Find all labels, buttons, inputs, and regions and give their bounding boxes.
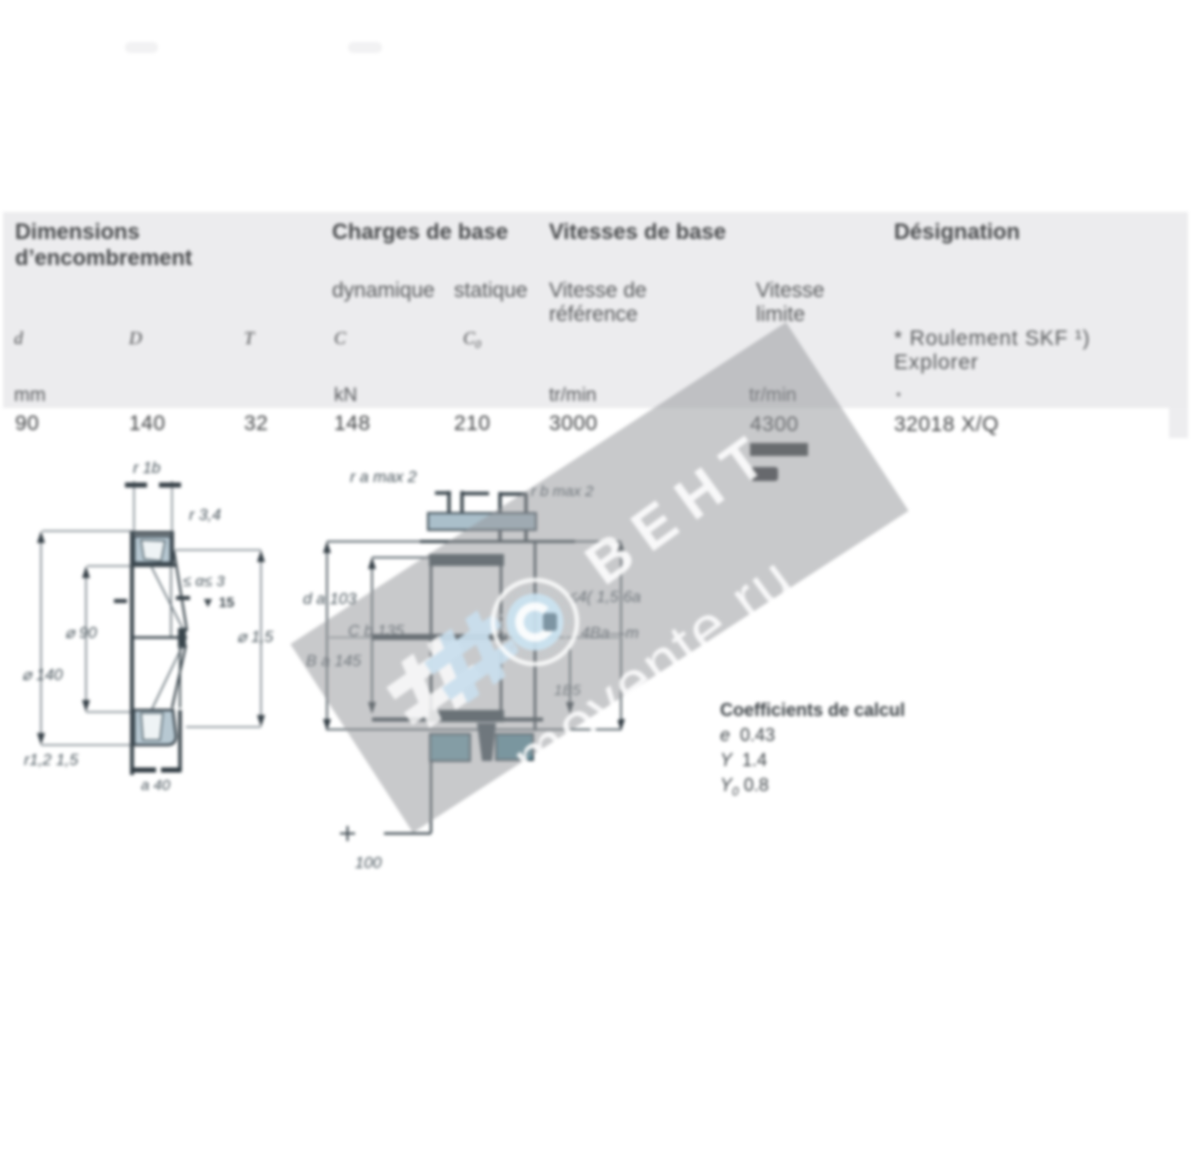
svg-text:r 1b: r 1b xyxy=(133,460,161,477)
svg-text:⌀ 1,5: ⌀ 1,5 xyxy=(237,629,273,646)
svg-text:⌀ 140: ⌀ 140 xyxy=(22,667,63,684)
svg-text:r a max 2: r a max 2 xyxy=(350,469,417,486)
svg-text:a 40: a 40 xyxy=(141,777,171,794)
svg-text:▼ 15: ▼ 15 xyxy=(201,594,235,610)
svg-text:r 3,4: r 3,4 xyxy=(189,507,221,524)
svg-text:r1,2 1,5: r1,2 1,5 xyxy=(24,752,78,769)
svg-text:≤ α≤ 3: ≤ α≤ 3 xyxy=(183,573,225,590)
svg-text:100: 100 xyxy=(355,855,382,872)
svg-text:⌀ 90: ⌀ 90 xyxy=(65,625,97,642)
